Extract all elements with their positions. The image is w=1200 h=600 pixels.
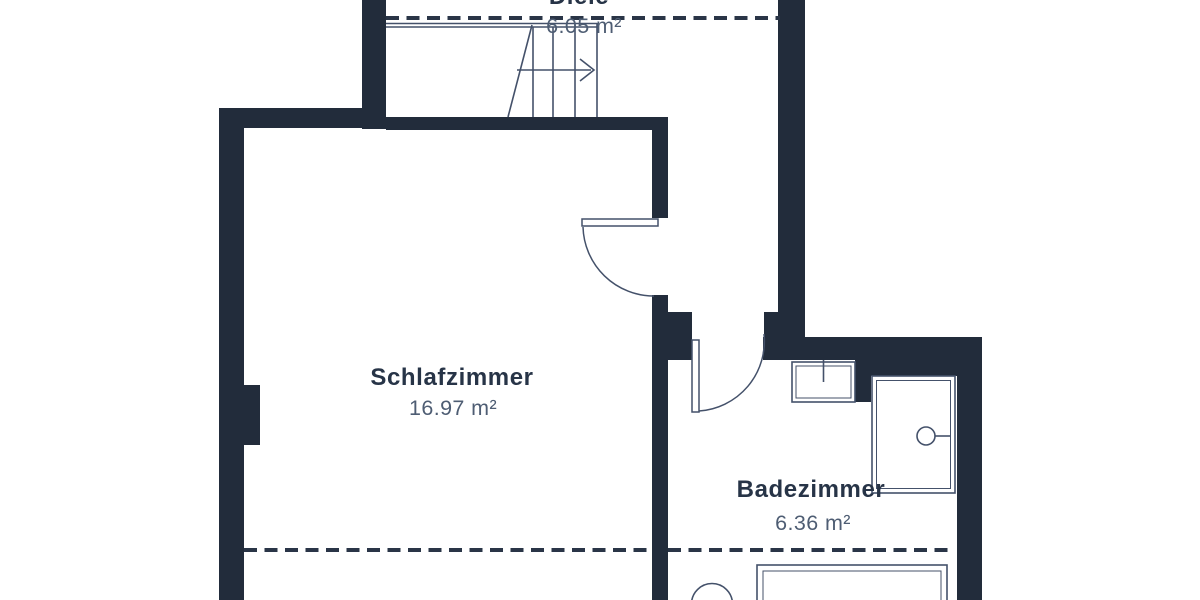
wall-bathtub-ledge xyxy=(871,360,957,376)
floor-plan-drawing xyxy=(0,0,1200,600)
door-swing-arc xyxy=(583,227,654,296)
wall-bedroom-top xyxy=(386,117,668,130)
bathtub-inner xyxy=(877,381,951,489)
wall-right-upper-exterior xyxy=(778,0,805,337)
room-area-badezimmer: 6.36 m² xyxy=(775,513,851,535)
wall-hall-left xyxy=(362,0,386,129)
wall-bedroom-right-lower xyxy=(652,360,668,600)
shower-tray xyxy=(757,565,947,600)
wall-bathroom-top xyxy=(763,337,982,360)
room-area-diele: 6.05 m² xyxy=(546,16,622,38)
wall-bedroom-right-upper xyxy=(652,130,668,218)
wall-top-left-exterior xyxy=(219,108,363,128)
wall-sink-pillar xyxy=(855,360,871,402)
floor-plan: Diele 6.05 m² Schlafzimmer 16.97 m² Bade… xyxy=(0,0,1200,600)
wall-bathroom-door-stub xyxy=(652,312,692,360)
stair-direction-arrow xyxy=(517,59,594,81)
room-label-badezimmer: Badezimmer xyxy=(737,478,886,502)
door-leaf xyxy=(582,219,658,226)
room-label-diele: Diele xyxy=(549,0,609,9)
door-badezimmer xyxy=(692,334,764,412)
wall-left-exterior xyxy=(219,108,244,600)
walls xyxy=(219,0,982,600)
door-leaf xyxy=(692,340,699,412)
shower-tray-inner xyxy=(763,571,941,600)
wall-right-exterior xyxy=(957,337,982,600)
shower-tray-outer xyxy=(757,565,947,600)
washbasin xyxy=(792,360,855,402)
toilet xyxy=(692,584,733,600)
wall-left-pillar xyxy=(244,385,260,445)
room-label-schlafzimmer: Schlafzimmer xyxy=(370,366,533,390)
wall-bathroom-door-step xyxy=(764,312,780,338)
stair-break-line xyxy=(508,25,532,117)
bathtub-drain xyxy=(917,427,935,445)
room-area-schlafzimmer: 16.97 m² xyxy=(409,398,497,420)
door-schlafzimmer xyxy=(582,219,658,296)
area-boundary-lines xyxy=(244,18,955,550)
toilet-bowl xyxy=(692,584,733,600)
door-swing-arc xyxy=(699,334,764,411)
wall-bedroom-right-mid xyxy=(652,295,668,312)
